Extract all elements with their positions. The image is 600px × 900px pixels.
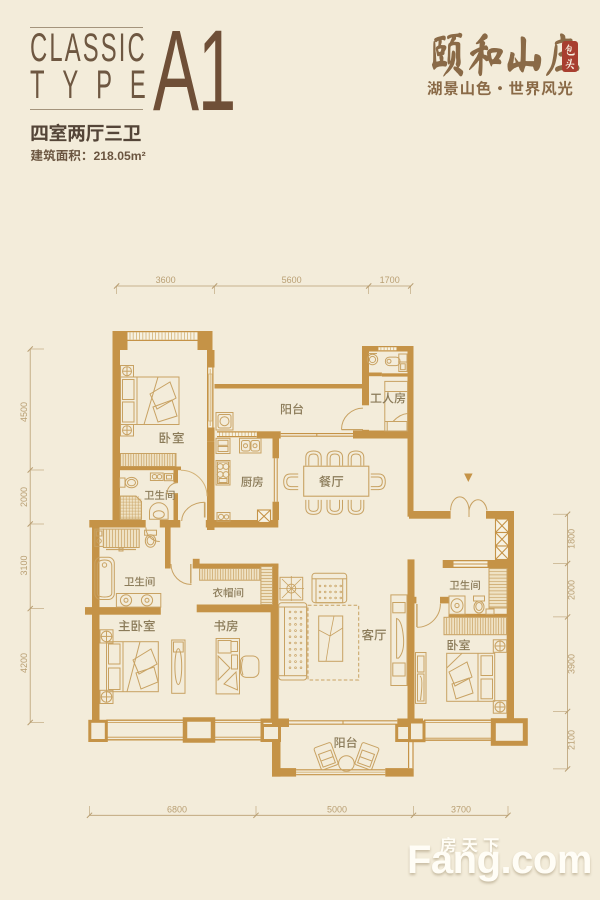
svg-text:卫生间: 卫生间 [449,578,481,593]
svg-text:餐厅: 餐厅 [319,471,344,490]
svg-text:3600: 3600 [156,275,176,285]
svg-text:2000: 2000 [567,580,577,600]
svg-text:3900: 3900 [567,654,577,674]
svg-text:卫生间: 卫生间 [144,488,176,503]
svg-text:客厅: 客厅 [361,625,386,644]
svg-text:书房: 书房 [213,616,238,635]
svg-text:2000: 2000 [19,487,29,507]
svg-text:阳台: 阳台 [334,734,358,751]
svg-text:3700: 3700 [451,805,471,815]
svg-text:卧室: 卧室 [446,637,470,654]
svg-text:4500: 4500 [19,402,29,422]
svg-text:2100: 2100 [567,730,577,750]
svg-text:6800: 6800 [167,805,187,815]
svg-text:衣帽间: 衣帽间 [213,586,245,601]
svg-text:1800: 1800 [567,529,577,549]
svg-text:3100: 3100 [19,555,29,575]
svg-text:4200: 4200 [19,653,29,673]
svg-text:5600: 5600 [282,275,302,285]
svg-text:5000: 5000 [327,805,347,815]
svg-text:厨房: 厨房 [241,474,264,490]
svg-text:主卧室: 主卧室 [118,616,156,635]
svg-text:工人房: 工人房 [370,390,406,407]
svg-text:1700: 1700 [380,275,400,285]
svg-text:卧室: 卧室 [158,428,185,447]
svg-text:卫生间: 卫生间 [124,575,156,590]
svg-text:阳台: 阳台 [280,401,304,418]
